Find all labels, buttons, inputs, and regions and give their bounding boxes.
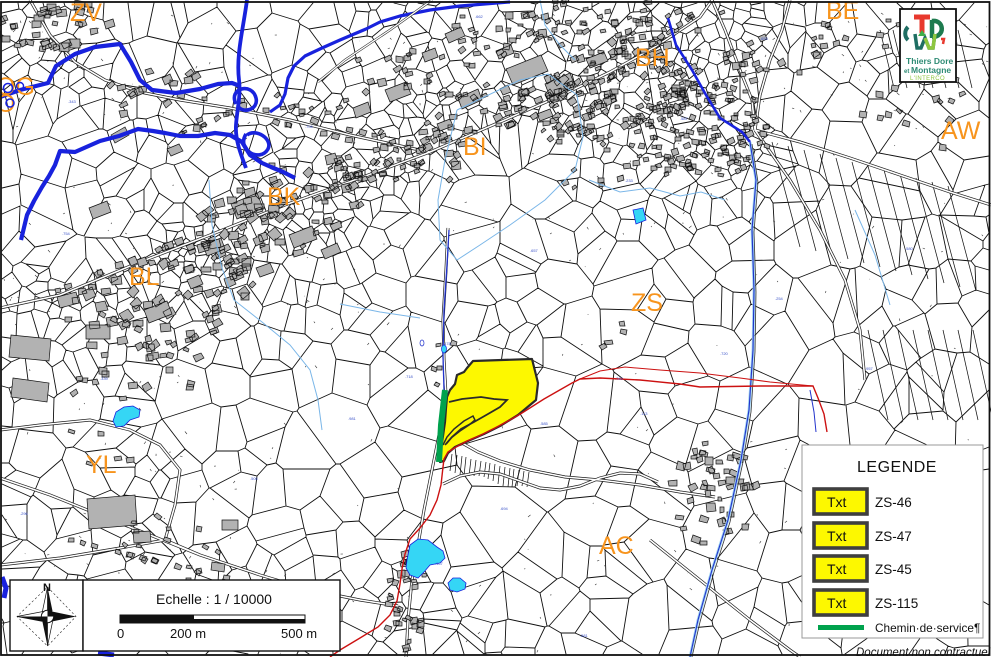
svg-text:N: N bbox=[43, 582, 51, 594]
svg-text:Echelle : 1 / 10000: Echelle : 1 / 10000 bbox=[156, 591, 272, 607]
svg-text:.957: .957 bbox=[865, 366, 874, 371]
svg-text:Txt: Txt bbox=[827, 561, 847, 577]
svg-text:AC: AC bbox=[599, 532, 634, 560]
svg-text:BI: BI bbox=[463, 133, 487, 161]
svg-text:L'INTERCO: L'INTERCO bbox=[910, 76, 945, 82]
svg-text:YL: YL bbox=[86, 451, 117, 479]
svg-text:LEGENDE: LEGENDE bbox=[857, 459, 937, 476]
svg-text:ZS-45: ZS-45 bbox=[875, 562, 912, 577]
svg-text:BH: BH bbox=[635, 44, 670, 72]
svg-text:.585: .585 bbox=[540, 421, 549, 426]
svg-text:Txt: Txt bbox=[827, 494, 847, 510]
svg-text:.580: .580 bbox=[905, 246, 914, 251]
svg-text:.478: .478 bbox=[443, 341, 452, 346]
svg-text:AW: AW bbox=[941, 117, 981, 145]
svg-text:BL: BL bbox=[129, 263, 160, 291]
svg-text:.706: .706 bbox=[305, 124, 314, 129]
svg-text:.296: .296 bbox=[20, 511, 29, 516]
svg-text:.662: .662 bbox=[475, 14, 484, 19]
svg-text:.694: .694 bbox=[500, 506, 509, 511]
svg-text:ZS-115: ZS-115 bbox=[875, 596, 918, 611]
svg-text:Txt: Txt bbox=[827, 528, 847, 544]
svg-text:BK: BK bbox=[267, 183, 301, 211]
svg-text:et Montagne: et Montagne bbox=[904, 65, 951, 75]
svg-text:.720: .720 bbox=[720, 351, 729, 356]
svg-text:ZS-46: ZS-46 bbox=[875, 495, 912, 510]
svg-text:200 m: 200 m bbox=[170, 626, 206, 641]
svg-text:.581: .581 bbox=[580, 633, 589, 638]
svg-text:Chemin·de·service¶: Chemin·de·service¶ bbox=[875, 621, 980, 635]
svg-text:.506: .506 bbox=[250, 476, 259, 481]
svg-text:.339: .339 bbox=[100, 376, 109, 381]
svg-text:Document non contractuel: Document non contractuel bbox=[856, 647, 991, 657]
svg-text:ZS-47: ZS-47 bbox=[875, 529, 912, 544]
svg-text:.167: .167 bbox=[435, 561, 444, 566]
svg-text:.587: .587 bbox=[680, 116, 689, 121]
svg-text:Txt: Txt bbox=[827, 595, 847, 611]
svg-text:.718: .718 bbox=[405, 374, 414, 379]
svg-text:.254: .254 bbox=[775, 296, 784, 301]
svg-text:.343: .343 bbox=[68, 99, 77, 104]
svg-text:.981: .981 bbox=[348, 416, 357, 421]
svg-text:BE: BE bbox=[826, 0, 859, 25]
svg-text:.233: .233 bbox=[625, 178, 634, 183]
svg-text:.113: .113 bbox=[640, 411, 648, 416]
svg-text:.657: .657 bbox=[530, 248, 539, 253]
svg-text:.653: .653 bbox=[760, 36, 769, 41]
svg-text:500 m: 500 m bbox=[281, 626, 317, 641]
svg-text:.740: .740 bbox=[615, 376, 624, 381]
svg-text:ZV: ZV bbox=[70, 0, 102, 27]
svg-text:ZS: ZS bbox=[631, 289, 663, 317]
svg-text:0: 0 bbox=[117, 626, 124, 641]
svg-text:.754: .754 bbox=[62, 231, 71, 236]
